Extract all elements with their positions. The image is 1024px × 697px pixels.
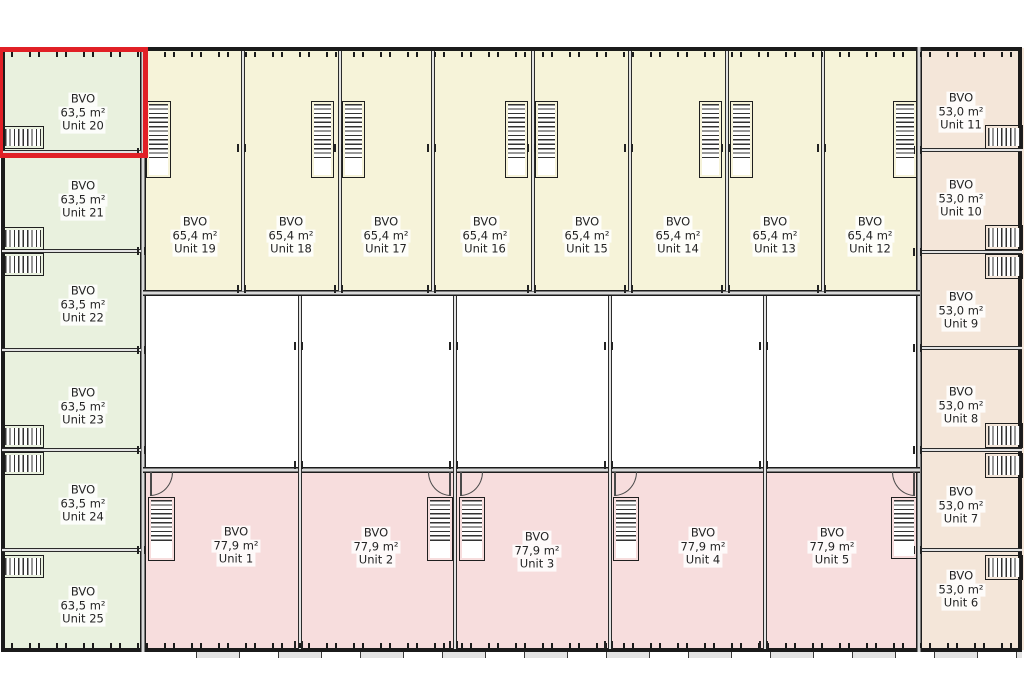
- stairs-icon: [311, 101, 334, 178]
- wall: [922, 448, 1022, 452]
- column-marker: [137, 247, 146, 255]
- column-marker: [427, 285, 436, 293]
- wall: [241, 51, 245, 291]
- door-swing-icon: [892, 472, 915, 496]
- column-marker: [817, 144, 826, 152]
- wall: [2, 150, 141, 154]
- stairs-icon: [893, 101, 917, 178]
- door-arc: [150, 472, 173, 496]
- wall: [922, 548, 1022, 552]
- column-marker: [427, 144, 436, 152]
- door-arc: [614, 472, 637, 496]
- column-marker: [913, 248, 922, 256]
- door-arc: [428, 472, 451, 496]
- column-marker: [449, 342, 458, 350]
- stairs-icon: [148, 497, 175, 561]
- column-marker: [334, 285, 343, 293]
- stairs-icon: [985, 254, 1023, 279]
- wall: [2, 548, 141, 552]
- floor-plan-canvas: BVO77,9 m²Unit 1BVO77,9 m²Unit 2BVO77,9 …: [0, 0, 1024, 697]
- stairs-icon: [699, 101, 722, 178]
- column-marker: [721, 285, 730, 293]
- stairs-icon: [985, 555, 1023, 580]
- column-marker: [604, 641, 613, 649]
- door-swing-icon: [150, 472, 173, 496]
- wall: [2, 47, 1022, 51]
- column-marker: [449, 641, 458, 649]
- column-marker: [294, 461, 303, 469]
- column-marker: [913, 446, 922, 454]
- stairs-icon: [505, 101, 528, 178]
- column-marker: [294, 641, 303, 649]
- column-marker: [759, 461, 768, 469]
- wall: [2, 348, 141, 352]
- wall: [821, 51, 825, 291]
- stairs-icon: [459, 497, 485, 561]
- column-marker: [604, 342, 613, 350]
- stairs-icon: [2, 555, 44, 578]
- column-marker: [137, 446, 146, 454]
- door-swing-icon: [614, 472, 637, 496]
- stairs-icon: [985, 423, 1023, 448]
- column-marker: [137, 546, 146, 554]
- facade-ticks: [2, 643, 1022, 648]
- stairs-icon: [146, 101, 171, 178]
- column-marker: [624, 285, 633, 293]
- wall: [922, 346, 1022, 350]
- wall: [725, 51, 729, 291]
- wall: [628, 51, 632, 291]
- stairs-icon: [2, 227, 44, 250]
- column-marker: [721, 144, 730, 152]
- stairs-icon: [891, 497, 917, 559]
- column-marker: [817, 285, 826, 293]
- column-marker: [237, 144, 246, 152]
- stairs-icon: [985, 225, 1023, 250]
- stairs-icon: [2, 425, 44, 448]
- column-marker: [294, 342, 303, 350]
- column-marker: [237, 285, 246, 293]
- column-marker: [449, 461, 458, 469]
- column-marker: [137, 148, 146, 156]
- facade-ticks: [2, 52, 1022, 57]
- stairs-icon: [427, 497, 453, 561]
- stairs-icon: [342, 101, 365, 178]
- stairs-icon: [2, 452, 44, 475]
- wall: [431, 51, 435, 291]
- column-marker: [137, 346, 146, 354]
- stairs-icon: [985, 453, 1023, 478]
- stairs-icon: [535, 101, 558, 178]
- stairs-icon: [730, 101, 753, 178]
- door-swing-icon: [428, 472, 451, 496]
- door-arc: [460, 472, 483, 496]
- stairs-icon: [2, 253, 44, 276]
- wall: [143, 467, 920, 473]
- column-marker: [624, 144, 633, 152]
- stairs-icon: [613, 497, 639, 561]
- stairs-icon: [2, 126, 44, 149]
- column-marker: [913, 344, 922, 352]
- column-marker: [527, 285, 536, 293]
- door-arc: [892, 472, 915, 496]
- column-marker: [604, 461, 613, 469]
- door-swing-icon: [460, 472, 483, 496]
- stairs-icon: [985, 125, 1023, 149]
- facade-doors: [196, 652, 1022, 658]
- column-marker: [759, 342, 768, 350]
- column-marker: [759, 641, 768, 649]
